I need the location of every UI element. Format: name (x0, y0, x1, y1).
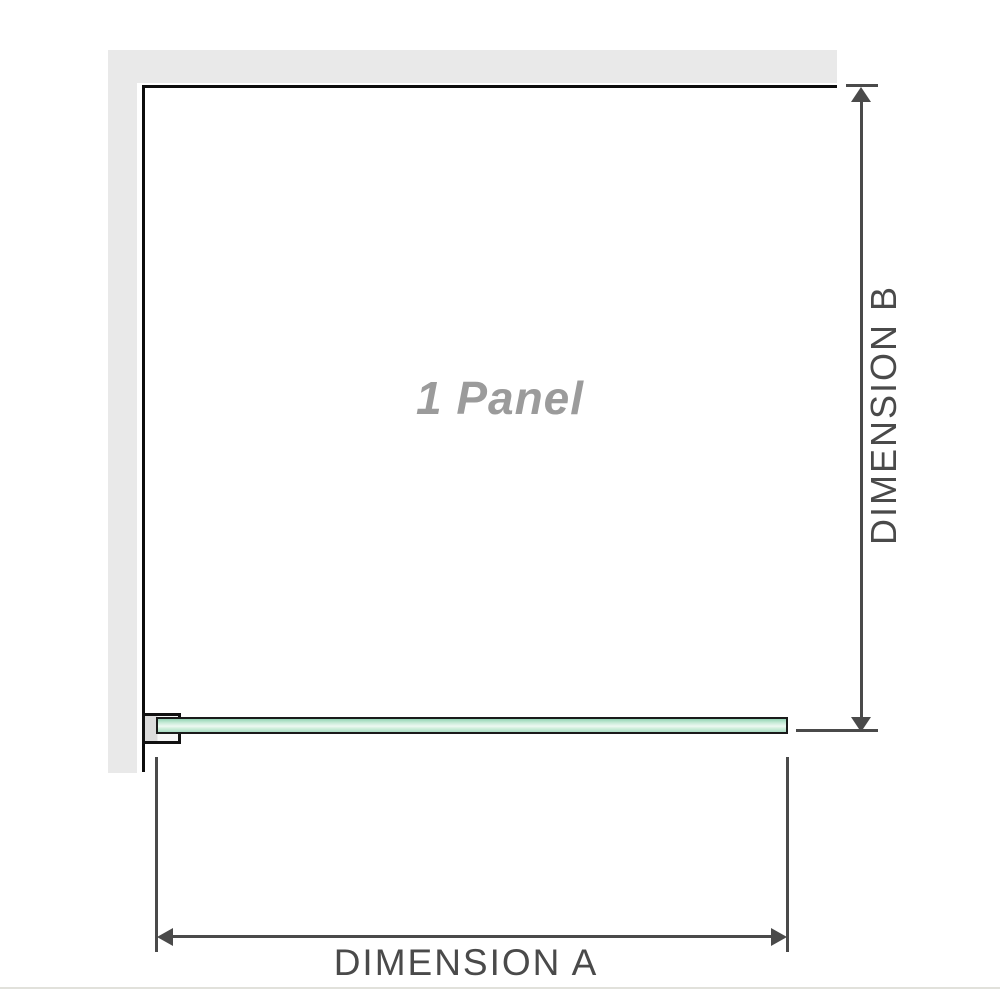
enclosure-outline-left-line (142, 85, 145, 772)
dimension-a-right-extension-line (786, 757, 789, 952)
wall-left (108, 50, 137, 773)
glass-panel (156, 717, 788, 734)
dimension-a-arrow-left-icon (157, 928, 173, 946)
dimension-a-left-extension-line (155, 757, 158, 952)
dimension-b-top-tick (846, 84, 878, 87)
bottom-hairline (0, 987, 1000, 989)
dimension-a-label: DIMENSION A (334, 942, 599, 984)
shower-panel-diagram: 1 Panel DIMENSION B DIMENSION A (0, 0, 1000, 1000)
dimension-a-arrow-right-icon (771, 928, 787, 946)
panel-count-label: 1 Panel (416, 371, 584, 425)
dimension-b-arrow-up-icon (851, 87, 871, 102)
dimension-b-bottom-tick (796, 729, 878, 732)
dimension-b-label: DIMENSION B (863, 285, 905, 545)
dimension-a-line (170, 935, 774, 938)
wall-top (108, 50, 837, 83)
enclosure-outline-top-line (142, 85, 837, 88)
